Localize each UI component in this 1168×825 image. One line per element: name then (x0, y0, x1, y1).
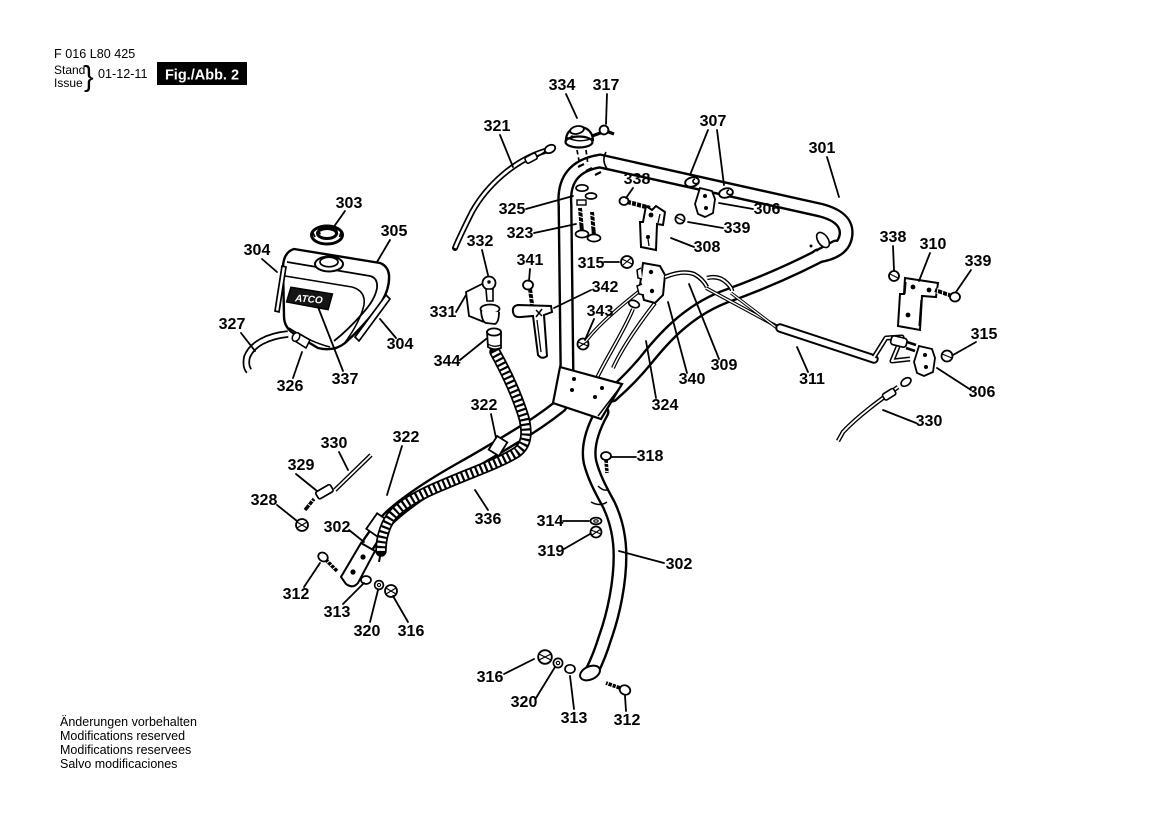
svg-text:326: 326 (277, 378, 304, 395)
svg-text:310: 310 (920, 236, 947, 253)
svg-text:Stand: Stand (54, 63, 85, 77)
svg-text:339: 339 (965, 253, 992, 270)
svg-text:320: 320 (511, 694, 538, 711)
svg-text:341: 341 (517, 252, 544, 269)
svg-text:}: } (84, 61, 94, 93)
svg-text:325: 325 (499, 201, 526, 218)
svg-text:343: 343 (587, 303, 614, 320)
svg-text:315: 315 (578, 255, 605, 272)
svg-text:331: 331 (430, 304, 457, 321)
svg-text:Fig./Abb. 2: Fig./Abb. 2 (165, 68, 239, 84)
svg-text:323: 323 (507, 225, 534, 242)
svg-text:311: 311 (799, 371, 825, 388)
svg-text:313: 313 (561, 710, 588, 727)
svg-text:334: 334 (549, 77, 576, 94)
svg-text:338: 338 (624, 171, 651, 188)
svg-text:327: 327 (219, 316, 246, 333)
svg-text:316: 316 (398, 623, 425, 640)
svg-text:308: 308 (694, 239, 721, 256)
svg-text:316: 316 (477, 669, 504, 686)
svg-text:Modifications reservees: Modifications reservees (60, 743, 191, 757)
svg-text:330: 330 (916, 413, 943, 430)
svg-text:301: 301 (809, 140, 836, 157)
svg-text:Änderungen vorbehalten: Änderungen vorbehalten (60, 715, 197, 729)
svg-text:309: 309 (711, 357, 738, 374)
svg-text:320: 320 (354, 623, 381, 640)
svg-text:302: 302 (666, 556, 693, 573)
svg-text:304: 304 (244, 242, 271, 259)
svg-text:322: 322 (471, 397, 498, 414)
svg-text:338: 338 (880, 229, 907, 246)
svg-text:306: 306 (754, 201, 781, 218)
svg-text:324: 324 (652, 397, 679, 414)
svg-text:306: 306 (969, 384, 996, 401)
svg-text:303: 303 (336, 195, 363, 212)
svg-text:340: 340 (679, 371, 706, 388)
svg-text:329: 329 (288, 457, 315, 474)
svg-text:332: 332 (467, 233, 494, 250)
svg-text:322: 322 (393, 429, 420, 446)
svg-text:302: 302 (324, 519, 351, 536)
svg-text:312: 312 (614, 712, 641, 729)
svg-text:Salvo modificaciones: Salvo modificaciones (60, 757, 177, 771)
svg-text:321: 321 (484, 118, 511, 135)
svg-text:Issue: Issue (54, 76, 83, 90)
svg-text:319: 319 (538, 543, 565, 560)
svg-text:307: 307 (700, 113, 727, 130)
svg-text:01-12-11: 01-12-11 (98, 67, 147, 81)
svg-text:304: 304 (387, 336, 414, 353)
svg-text:318: 318 (637, 448, 664, 465)
svg-text:315: 315 (971, 326, 998, 343)
svg-text:337: 337 (332, 371, 359, 388)
svg-text:342: 342 (592, 279, 619, 296)
svg-text:314: 314 (537, 513, 564, 530)
svg-text:317: 317 (593, 77, 620, 94)
svg-text:305: 305 (381, 223, 408, 240)
svg-text:336: 336 (475, 511, 502, 528)
svg-text:328: 328 (251, 492, 278, 509)
svg-text:F 016 L80 425: F 016 L80 425 (54, 47, 135, 61)
svg-text:313: 313 (324, 604, 351, 621)
svg-text:Modifications reserved: Modifications reserved (60, 729, 185, 743)
svg-text:312: 312 (283, 586, 310, 603)
svg-text:344: 344 (434, 353, 461, 370)
svg-text:339: 339 (724, 220, 751, 237)
svg-text:330: 330 (321, 435, 348, 452)
